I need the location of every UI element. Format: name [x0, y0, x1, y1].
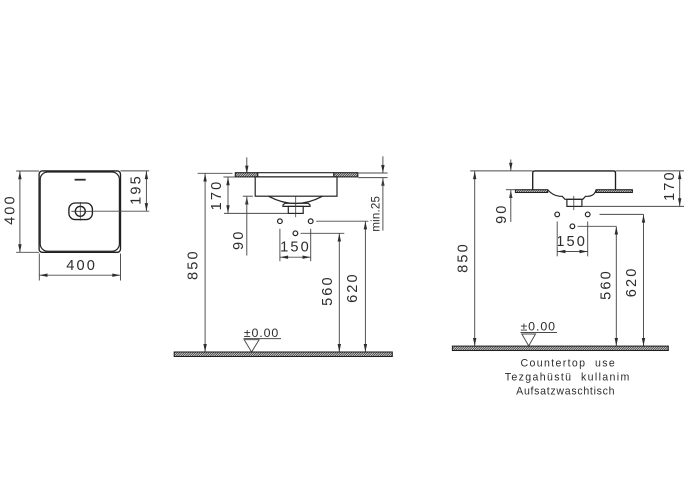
svg-text:±0.00: ±0.00: [520, 320, 555, 334]
svg-text:170: 170: [662, 170, 678, 201]
svg-text:150: 150: [280, 239, 311, 255]
svg-text:min.25: min.25: [370, 196, 382, 232]
svg-text:195: 195: [129, 174, 145, 205]
svg-text:Tezgahüstü kullanim: Tezgahüstü kullanim: [505, 371, 631, 383]
svg-text:90: 90: [494, 203, 510, 223]
svg-text:±0.00: ±0.00: [244, 326, 279, 340]
svg-text:170: 170: [209, 180, 225, 211]
svg-text:620: 620: [624, 267, 640, 298]
svg-text:850: 850: [186, 249, 202, 280]
svg-text:400: 400: [2, 194, 18, 225]
svg-text:620: 620: [345, 272, 361, 303]
svg-text:150: 150: [556, 234, 587, 250]
svg-text:560: 560: [320, 275, 336, 306]
svg-text:850: 850: [456, 242, 472, 273]
svg-text:Aufsatzwaschtisch: Aufsatzwaschtisch: [516, 386, 615, 398]
svg-text:Countertop use: Countertop use: [520, 357, 616, 369]
svg-text:560: 560: [598, 269, 614, 300]
svg-text:90: 90: [231, 230, 247, 250]
svg-text:400: 400: [66, 258, 97, 274]
